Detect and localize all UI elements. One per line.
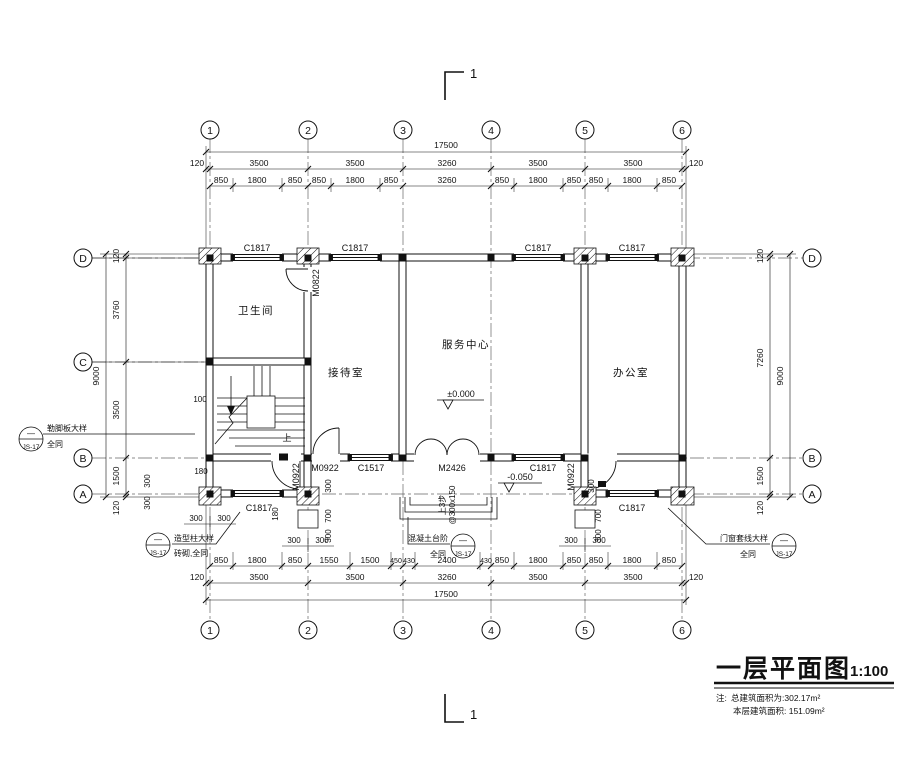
dim-label: 850 bbox=[312, 175, 326, 185]
dim-label: 180 bbox=[194, 467, 208, 476]
dim-label: 700 bbox=[324, 509, 333, 523]
pilasters bbox=[199, 248, 694, 528]
callout-text: 砖砌,全同 bbox=[174, 548, 208, 558]
column-footprint-right bbox=[575, 510, 595, 528]
dim-label: 1800 bbox=[529, 555, 548, 565]
dim-label: 3500 bbox=[250, 158, 269, 168]
grid-col-label: 6 bbox=[679, 625, 685, 637]
window-label: C1817 bbox=[342, 243, 369, 253]
grid-row-label: D bbox=[79, 253, 87, 265]
dim-label: 850 bbox=[495, 555, 509, 565]
room-label-service: 服务中心 bbox=[442, 338, 490, 351]
callout-text: 勒脚板大样 bbox=[47, 423, 87, 433]
dim-label: 850 bbox=[214, 175, 228, 185]
room-label-bathroom: 卫生间 bbox=[238, 304, 274, 317]
dim-label: 3500 bbox=[624, 572, 643, 582]
dim-label: 17500 bbox=[434, 140, 458, 150]
dim-label: 850 bbox=[662, 555, 676, 565]
dimension-labels-bottom: 850 1800 850 1550 1500 450 430 2400 430 … bbox=[190, 555, 703, 599]
dim-label: 300 bbox=[143, 496, 152, 510]
dim-label: 300 bbox=[217, 514, 231, 523]
dim-label: 430 bbox=[403, 558, 415, 565]
note-total-area: 总建筑面积为:302.17m² bbox=[731, 693, 820, 703]
dim-label: 300 bbox=[143, 474, 152, 488]
grid-col-label: 1 bbox=[207, 625, 213, 637]
grid-col-label: 3 bbox=[400, 625, 406, 637]
floor-plan-svg: 1 2 3 4 5 6 1 2 3 4 5 6 D C B A D B A 17… bbox=[0, 0, 898, 758]
dim-label: 850 bbox=[288, 175, 302, 185]
callout-text: 全同 bbox=[47, 439, 63, 449]
door-m2426 bbox=[415, 439, 479, 455]
dim-label: 1800 bbox=[623, 175, 642, 185]
dim-label: 120 bbox=[755, 501, 765, 515]
dim-label: 300 bbox=[587, 479, 596, 493]
dim-label: 1800 bbox=[623, 555, 642, 565]
callout-trim: — JS-17 门窗套线大样 全同 bbox=[668, 508, 796, 559]
dim-label: 3500 bbox=[346, 572, 365, 582]
dim-label: 120 bbox=[689, 572, 703, 582]
dim-label: 7260 bbox=[755, 348, 765, 367]
grid-col-label: 5 bbox=[582, 125, 588, 137]
grid-row-label: A bbox=[79, 489, 86, 501]
callout-text: 造型柱大样 bbox=[174, 533, 214, 543]
callout-ref-dash: — bbox=[27, 429, 35, 438]
column-footprint-left bbox=[298, 510, 318, 528]
dim-label: 1500 bbox=[755, 466, 765, 485]
callout-text: 混凝土台阶 bbox=[408, 533, 448, 543]
callout-ref-dash: — bbox=[154, 535, 162, 544]
window-label: C1817 bbox=[246, 503, 273, 513]
section-number-bottom: 1 bbox=[470, 707, 477, 722]
dim-label: 1800 bbox=[248, 555, 267, 565]
dim-label: 1800 bbox=[346, 175, 365, 185]
note-label: 注: bbox=[716, 693, 727, 703]
window-label: C1817 bbox=[244, 243, 271, 253]
dim-label: 850 bbox=[214, 555, 228, 565]
door-label: M0922 bbox=[291, 463, 301, 491]
door-label: M0922 bbox=[566, 463, 576, 491]
callout-left: — JS-17 勒脚板大样 全同 bbox=[19, 423, 195, 451]
dim-label: 850 bbox=[567, 555, 581, 565]
dim-label: 300 bbox=[287, 536, 301, 545]
dim-label: 1550 bbox=[320, 555, 339, 565]
note-floor-area: 本层建筑面积: 151.09m² bbox=[733, 706, 825, 716]
grid-col-label: 2 bbox=[305, 625, 311, 637]
dim-label: 1500 bbox=[111, 466, 121, 485]
elevation-label-entry: -0.050 bbox=[507, 472, 533, 482]
dim-label: 120 bbox=[755, 249, 765, 263]
window-c1817-top-2 bbox=[329, 254, 382, 262]
dim-label: 120 bbox=[190, 572, 204, 582]
window-label: C1517 bbox=[358, 463, 385, 473]
door-label: M0822 bbox=[311, 269, 321, 297]
dim-label: 300 bbox=[564, 536, 578, 545]
dimension-labels-top: 17500 120 3500 3500 3260 3500 3500 120 8… bbox=[190, 140, 703, 185]
dim-label: 3500 bbox=[624, 158, 643, 168]
small-dimension-marks bbox=[184, 516, 611, 552]
title-block: 一层平面图 1:100 注: 总建筑面积为:302.17m² 本层建筑面积: 1… bbox=[714, 655, 894, 716]
callout-ref-num: JS-17 bbox=[776, 551, 793, 558]
dim-label: 1800 bbox=[529, 175, 548, 185]
callout-ref-dash: — bbox=[780, 536, 788, 545]
window-c1817-b bbox=[512, 454, 565, 462]
dim-label: 3500 bbox=[529, 158, 548, 168]
dim-label: 300 bbox=[189, 514, 203, 523]
dim-label: 450 bbox=[390, 558, 402, 565]
grid-row-label: C bbox=[79, 357, 87, 369]
window-c1517 bbox=[348, 454, 393, 462]
dim-label: 120 bbox=[111, 249, 121, 263]
dim-label: 3760 bbox=[111, 300, 121, 319]
dim-label: 300 bbox=[324, 529, 333, 543]
window-c1817-top-1 bbox=[231, 254, 284, 262]
dim-label: 850 bbox=[589, 175, 603, 185]
dim-label: 3500 bbox=[529, 572, 548, 582]
dim-label: 9000 bbox=[775, 366, 785, 385]
callout-ref-num: JS-17 bbox=[150, 550, 167, 557]
room-label-reception: 接待室 bbox=[328, 366, 364, 379]
grid-row-label: B bbox=[79, 453, 86, 465]
dim-label: 1800 bbox=[248, 175, 267, 185]
dim-label: 430 bbox=[480, 558, 492, 565]
callout-ref-num: JS-17 bbox=[455, 551, 472, 558]
room-label-office: 办公室 bbox=[613, 366, 649, 379]
stair-up-label: 上 bbox=[282, 433, 291, 443]
grid-col-label: 1 bbox=[207, 125, 213, 137]
dim-label: 120 bbox=[190, 158, 204, 168]
grid-row-label: A bbox=[808, 489, 815, 501]
elevation-label-zero: ±0.000 bbox=[447, 389, 474, 399]
callout-ref-dash: — bbox=[459, 536, 467, 545]
dim-label: 3500 bbox=[250, 572, 269, 582]
dim-label: 850 bbox=[384, 175, 398, 185]
grid-col-label: 6 bbox=[679, 125, 685, 137]
dim-label: 3260 bbox=[438, 175, 457, 185]
dim-label: 9000 bbox=[91, 366, 101, 385]
grid-col-label: 4 bbox=[488, 125, 494, 137]
window-label: C1817 bbox=[619, 503, 646, 513]
dim-label: 3260 bbox=[438, 158, 457, 168]
drawing-scale: 1:100 bbox=[850, 663, 888, 680]
door-label: M0922 bbox=[311, 463, 339, 473]
dim-label: 3500 bbox=[111, 400, 121, 419]
window-c1817-a-left bbox=[231, 490, 284, 498]
callout-steps: — JS-17 混凝土台阶 全同 bbox=[408, 517, 475, 559]
section-number-top: 1 bbox=[470, 66, 477, 81]
steps-note: @300x150 bbox=[448, 485, 457, 524]
dim-label: 850 bbox=[288, 555, 302, 565]
grid-col-label: 4 bbox=[488, 625, 494, 637]
grid-col-label: 5 bbox=[582, 625, 588, 637]
dim-label: 3260 bbox=[438, 572, 457, 582]
door-m0922-reception bbox=[313, 428, 339, 454]
dim-label: 850 bbox=[589, 555, 603, 565]
dim-label: 700 bbox=[594, 509, 603, 523]
grid-row-label: B bbox=[808, 453, 815, 465]
dim-label: 120 bbox=[689, 158, 703, 168]
dim-label: 100 bbox=[193, 395, 207, 404]
dim-label: 180 bbox=[271, 507, 280, 521]
door-gaps bbox=[271, 267, 617, 462]
dim-label: 300 bbox=[324, 479, 333, 493]
window-label: C1817 bbox=[525, 243, 552, 253]
callout-text: 全同 bbox=[740, 549, 756, 559]
floor-plan-drawing: 1 2 3 4 5 6 1 2 3 4 5 6 D C B A D B A 17… bbox=[0, 0, 898, 758]
dim-label: 3500 bbox=[346, 158, 365, 168]
dim-label: 300 bbox=[594, 529, 603, 543]
dim-label: 17500 bbox=[434, 589, 458, 599]
callout-ref-num: JS-17 bbox=[23, 444, 40, 451]
steps-note: 上3步 bbox=[438, 495, 447, 515]
callout-text: 门窗套线大样 bbox=[720, 533, 768, 543]
window-label: C1817 bbox=[530, 463, 557, 473]
callout-text: 全同 bbox=[430, 549, 446, 559]
dim-label: 850 bbox=[495, 175, 509, 185]
dim-label: 120 bbox=[111, 501, 121, 515]
door-label: M2426 bbox=[438, 463, 466, 473]
window-c1817-top-3 bbox=[512, 254, 565, 262]
grid-col-label: 2 bbox=[305, 125, 311, 137]
dim-label: 1500 bbox=[361, 555, 380, 565]
window-c1817-top-4 bbox=[606, 254, 659, 262]
window-label: C1817 bbox=[619, 243, 646, 253]
grid-row-label: D bbox=[808, 253, 816, 265]
dim-label: 850 bbox=[567, 175, 581, 185]
window-c1817-a-right bbox=[606, 490, 659, 498]
drawing-title: 一层平面图 bbox=[716, 655, 851, 683]
grid-col-label: 3 bbox=[400, 125, 406, 137]
dim-label: 850 bbox=[662, 175, 676, 185]
